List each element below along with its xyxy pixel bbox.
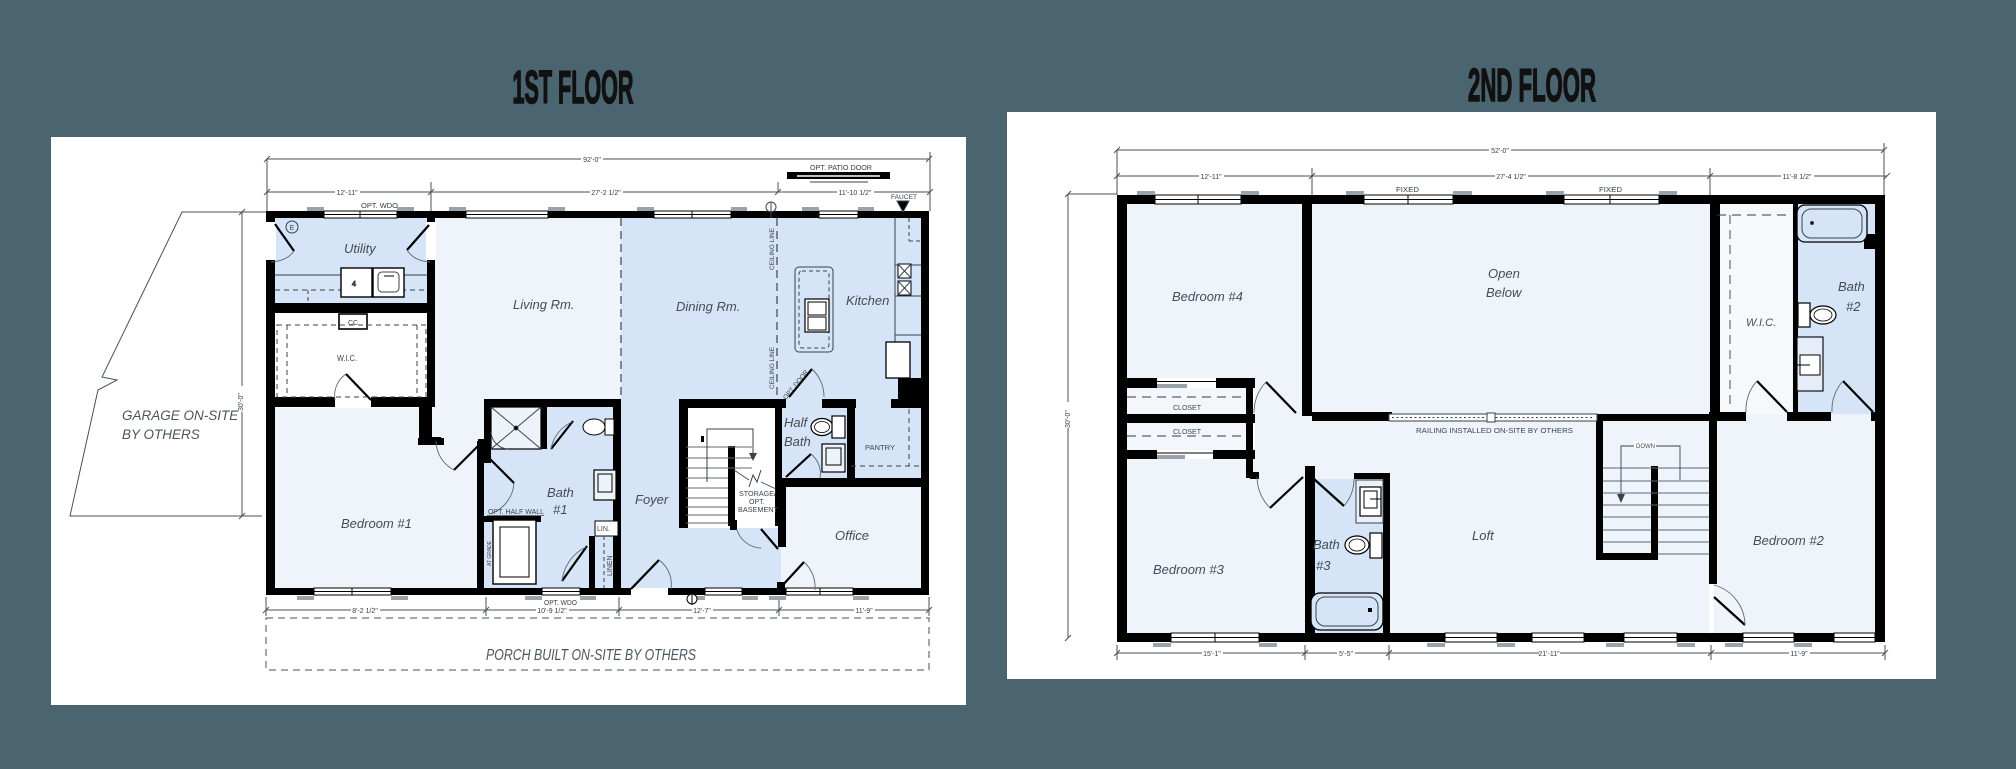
svg-text:Open: Open (1488, 266, 1520, 281)
svg-text:BY OTHERS: BY OTHERS (122, 427, 200, 442)
svg-text:AT GRADE: AT GRADE (487, 540, 493, 566)
svg-text:OPT.: OPT. (749, 499, 765, 506)
svg-text:PANTRY: PANTRY (865, 443, 895, 452)
svg-text:11'-8 1/2": 11'-8 1/2" (1783, 174, 1813, 181)
svg-text:Bedroom #2: Bedroom #2 (1753, 533, 1825, 548)
svg-text:W.I.C.: W.I.C. (337, 354, 357, 363)
svg-text:Bedroom #4: Bedroom #4 (1172, 289, 1243, 304)
svg-text:2ND FLOOR: 2ND FLOOR (1468, 59, 1596, 111)
svg-text:CEILING LINE: CEILING LINE (769, 346, 776, 389)
svg-text:12'-11": 12'-11" (336, 190, 358, 197)
svg-text:Utility: Utility (344, 241, 377, 256)
svg-text:Half: Half (784, 415, 809, 430)
svg-text:RAILING INSTALLED ON-SITE BY O: RAILING INSTALLED ON-SITE BY OTHERS (1416, 426, 1573, 435)
svg-text:CC: CC (348, 320, 358, 327)
svg-text:30'-0": 30'-0" (1065, 410, 1072, 428)
svg-text:OPT. WDO: OPT. WDO (544, 600, 578, 607)
svg-text:Bedroom #3: Bedroom #3 (1153, 562, 1225, 577)
svg-text:Bath: Bath (1838, 279, 1865, 294)
svg-text:#2: #2 (1846, 299, 1861, 314)
svg-text:Office: Office (835, 528, 869, 543)
svg-text:Bath: Bath (1313, 537, 1340, 552)
svg-text:8'-2 1/2": 8'-2 1/2" (352, 608, 378, 615)
svg-text:12'-11": 12'-11" (1200, 174, 1222, 181)
svg-text:Dining Rm.: Dining Rm. (676, 299, 740, 314)
svg-text:PORCH BUILT ON-SITE BY OTHERS: PORCH BUILT ON-SITE BY OTHERS (486, 647, 696, 664)
svg-text:1ST FLOOR: 1ST FLOOR (513, 61, 634, 113)
svg-text:LINEN: LINEN (607, 555, 614, 576)
svg-text:E: E (290, 225, 295, 232)
svg-text:#1: #1 (553, 502, 567, 517)
svg-text:GARAGE ON-SITE: GARAGE ON-SITE (122, 408, 239, 423)
svg-text:30'-0": 30'-0" (238, 393, 245, 411)
svg-text:OPT. PATIO DOOR: OPT. PATIO DOOR (810, 165, 872, 172)
svg-text:52'-0": 52'-0" (1491, 148, 1509, 155)
svg-text:FAUCET: FAUCET (891, 194, 917, 201)
svg-text:11'-10 1/2": 11'-10 1/2" (839, 190, 872, 197)
svg-text:LIN.: LIN. (597, 526, 610, 533)
svg-text:Bath: Bath (784, 434, 811, 449)
svg-text:11'-9": 11'-9" (855, 608, 873, 615)
svg-text:Below: Below (1486, 285, 1523, 300)
svg-text:CLOSET: CLOSET (1173, 403, 1201, 412)
svg-text:CLOSET: CLOSET (1173, 427, 1201, 436)
svg-text:Loft: Loft (1472, 528, 1495, 543)
svg-text:Living Rm.: Living Rm. (513, 297, 574, 312)
svg-text:21'-11": 21'-11" (1538, 651, 1560, 658)
svg-text:10'-9 1/2": 10'-9 1/2" (537, 608, 567, 615)
svg-text:STORAGE/: STORAGE/ (739, 491, 776, 498)
svg-text:CEILING LINE: CEILING LINE (769, 227, 776, 270)
svg-text:OPT. HALF WALL: OPT. HALF WALL (488, 507, 544, 516)
svg-text:5'-5": 5'-5" (1339, 651, 1353, 658)
svg-text:FIXED: FIXED (1599, 187, 1622, 194)
svg-text:4: 4 (352, 281, 356, 288)
svg-text:27'-4 1/2": 27'-4 1/2" (1496, 174, 1526, 181)
svg-text:12'-7": 12'-7" (693, 608, 711, 615)
svg-text:FIXED: FIXED (1396, 187, 1419, 194)
svg-text:#3: #3 (1316, 558, 1331, 573)
svg-text:BASEMENT: BASEMENT (738, 507, 779, 514)
svg-text:DOWN: DOWN (1636, 444, 1655, 450)
svg-text:OPT. WDO: OPT. WDO (361, 203, 399, 210)
svg-text:Bath: Bath (547, 485, 574, 500)
svg-text:15'-1": 15'-1" (1203, 651, 1221, 658)
svg-text:Foyer: Foyer (635, 492, 669, 507)
svg-text:11'-9": 11'-9" (1790, 651, 1808, 658)
svg-text:W.I.C.: W.I.C. (1746, 317, 1776, 329)
svg-text:92'-0": 92'-0" (583, 157, 601, 164)
svg-text:27'-2 1/2": 27'-2 1/2" (591, 190, 621, 197)
svg-text:Bedroom #1: Bedroom #1 (341, 516, 412, 531)
svg-text:Kitchen: Kitchen (846, 293, 889, 308)
